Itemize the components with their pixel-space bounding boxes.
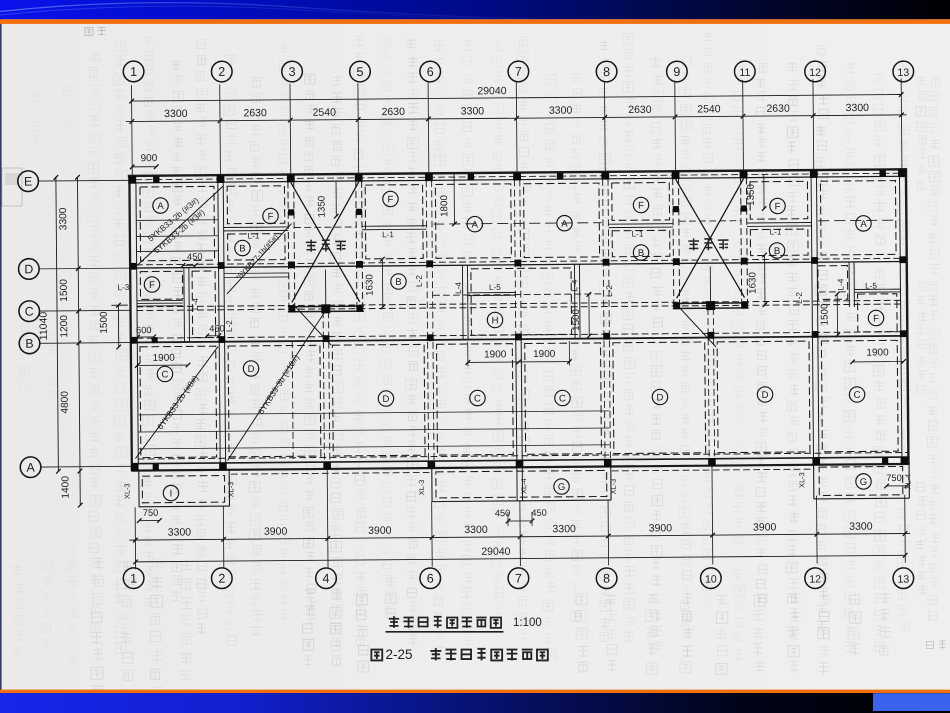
svg-text:1800: 1800 — [439, 195, 450, 217]
svg-text:12: 12 — [809, 67, 821, 79]
svg-text:8: 8 — [603, 65, 610, 79]
svg-text:C: C — [25, 305, 34, 319]
svg-text:G: G — [558, 482, 566, 493]
svg-text:A: A — [472, 220, 479, 231]
svg-text:L-1: L-1 — [248, 231, 260, 240]
svg-text:F: F — [387, 194, 393, 205]
svg-text:1900: 1900 — [153, 353, 176, 364]
svg-text:29040: 29040 — [477, 85, 506, 97]
svg-text:L-2: L-2 — [225, 320, 234, 332]
svg-text:D: D — [656, 392, 663, 403]
svg-text:L-4: L-4 — [191, 298, 200, 310]
svg-text:3300: 3300 — [849, 521, 873, 533]
svg-text:L-1: L-1 — [632, 229, 644, 238]
svg-text:B: B — [774, 246, 781, 257]
svg-text:1500: 1500 — [59, 279, 70, 302]
svg-text:C: C — [559, 393, 566, 404]
svg-text:750: 750 — [886, 473, 902, 483]
svg-text:A: A — [561, 219, 568, 230]
svg-text:L-1: L-1 — [382, 230, 394, 239]
svg-text:XL-4: XL-4 — [903, 474, 912, 490]
svg-text:2540: 2540 — [697, 103, 721, 115]
svg-text:3300: 3300 — [464, 524, 488, 536]
svg-text:A: A — [860, 219, 867, 230]
svg-text:8: 8 — [603, 572, 610, 586]
svg-text:F: F — [873, 313, 879, 324]
svg-text:1350: 1350 — [746, 183, 757, 205]
svg-text:H: H — [492, 315, 499, 326]
svg-text:B: B — [239, 243, 246, 254]
svg-text:3300: 3300 — [549, 105, 573, 117]
svg-text:L-2: L-2 — [605, 285, 614, 297]
svg-text:A: A — [157, 201, 164, 212]
svg-text:29040: 29040 — [481, 546, 510, 558]
svg-text:C: C — [161, 369, 168, 380]
svg-text:2-25: 2-25 — [386, 647, 413, 662]
svg-text:L-4: L-4 — [454, 282, 463, 294]
svg-text:13: 13 — [897, 574, 909, 586]
svg-text:L-2: L-2 — [795, 292, 804, 304]
svg-text:6: 6 — [427, 65, 434, 79]
svg-text:1200: 1200 — [59, 315, 70, 338]
svg-text:450: 450 — [531, 508, 547, 518]
svg-text:5: 5 — [356, 65, 363, 79]
svg-text:2630: 2630 — [766, 103, 790, 115]
svg-text:D: D — [382, 394, 389, 405]
svg-text:B: B — [638, 248, 645, 259]
svg-text:3300: 3300 — [461, 105, 485, 117]
svg-text:1900: 1900 — [533, 349, 556, 360]
svg-text:11: 11 — [739, 67, 750, 79]
svg-text:3300: 3300 — [164, 108, 188, 120]
svg-text:1: 1 — [130, 572, 137, 586]
svg-text:D: D — [762, 390, 769, 401]
svg-text:L-5: L-5 — [865, 281, 877, 290]
svg-text:750: 750 — [143, 508, 159, 518]
svg-text:F: F — [775, 201, 781, 212]
svg-text:L-1: L-1 — [770, 227, 782, 236]
svg-text:13: 13 — [897, 67, 909, 79]
svg-text:XL-3: XL-3 — [797, 472, 806, 488]
svg-text:XL-3: XL-3 — [609, 479, 618, 495]
svg-text:1:100: 1:100 — [513, 617, 542, 629]
svg-text:4800: 4800 — [60, 391, 71, 414]
svg-text:450: 450 — [209, 323, 225, 333]
svg-text:D: D — [248, 364, 255, 375]
svg-text:1900: 1900 — [484, 349, 507, 360]
svg-text:600: 600 — [136, 325, 152, 335]
svg-text:3900: 3900 — [753, 521, 777, 533]
svg-text:F: F — [638, 200, 644, 211]
svg-text:450: 450 — [187, 252, 203, 262]
svg-text:3900: 3900 — [649, 522, 673, 534]
svg-text:1500: 1500 — [571, 308, 582, 330]
svg-text:B: B — [25, 337, 33, 351]
svg-text:C: C — [854, 390, 861, 401]
svg-text:E: E — [24, 175, 32, 189]
svg-text:G: G — [860, 477, 868, 488]
svg-text:6: 6 — [427, 572, 434, 586]
svg-text:A: A — [26, 461, 35, 475]
svg-text:12: 12 — [809, 574, 821, 586]
svg-text:2540: 2540 — [313, 107, 337, 119]
svg-text:3: 3 — [289, 65, 296, 79]
svg-text:F: F — [149, 280, 155, 291]
svg-text:L-4: L-4 — [836, 278, 845, 290]
svg-text:4: 4 — [322, 572, 329, 586]
svg-text:L-2: L-2 — [415, 275, 424, 287]
svg-text:L-4: L-4 — [570, 279, 579, 291]
svg-text:9: 9 — [673, 65, 680, 79]
svg-text:C: C — [474, 393, 481, 404]
svg-text:11040: 11040 — [38, 312, 50, 341]
svg-text:XL-3: XL-3 — [417, 480, 426, 496]
svg-text:1630: 1630 — [747, 271, 758, 293]
svg-text:1500: 1500 — [819, 303, 830, 325]
svg-text:D: D — [24, 262, 33, 276]
svg-text:1400: 1400 — [60, 476, 71, 499]
svg-text:1500: 1500 — [99, 311, 110, 334]
svg-text:2630: 2630 — [382, 106, 406, 118]
svg-text:1630: 1630 — [364, 274, 375, 296]
svg-text:3300: 3300 — [552, 523, 576, 535]
svg-text:L-5: L-5 — [489, 283, 501, 292]
svg-text:3300: 3300 — [168, 526, 192, 538]
svg-text:2: 2 — [218, 65, 225, 79]
svg-text:2630: 2630 — [628, 104, 652, 116]
svg-text:XL-3: XL-3 — [226, 482, 235, 498]
svg-text:XL-4: XL-4 — [519, 478, 528, 494]
svg-text:3300: 3300 — [58, 207, 69, 230]
svg-text:1350: 1350 — [317, 195, 328, 217]
svg-text:2630: 2630 — [243, 107, 267, 119]
svg-text:10: 10 — [705, 574, 717, 586]
svg-text:3900: 3900 — [264, 526, 288, 538]
svg-text:7: 7 — [515, 572, 522, 586]
svg-text:7: 7 — [515, 65, 522, 79]
svg-text:B: B — [395, 277, 402, 288]
svg-text:1900: 1900 — [866, 347, 889, 358]
svg-text:3900: 3900 — [368, 525, 392, 537]
svg-text:F: F — [268, 211, 274, 222]
svg-text:900: 900 — [141, 153, 158, 164]
svg-text:3300: 3300 — [846, 102, 870, 114]
svg-text:2: 2 — [218, 572, 225, 586]
svg-text:I: I — [170, 488, 173, 499]
svg-text:L-3: L-3 — [117, 283, 129, 292]
svg-text:1: 1 — [130, 65, 137, 79]
svg-text:XL-3: XL-3 — [122, 483, 131, 499]
